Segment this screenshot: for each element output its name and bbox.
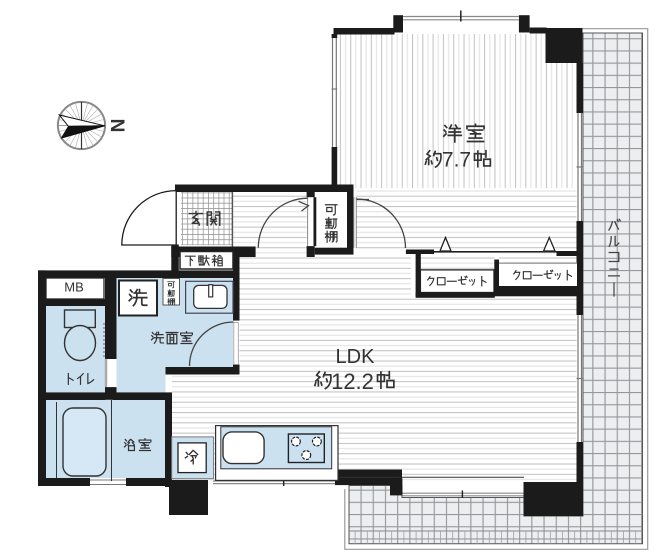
svg-text:N: N xyxy=(106,119,127,133)
svg-text:7.7: 7.7 xyxy=(442,149,471,172)
svg-text:LDK: LDK xyxy=(336,346,376,368)
svg-text:MB: MB xyxy=(64,280,84,295)
svg-text:12.2: 12.2 xyxy=(331,369,374,394)
